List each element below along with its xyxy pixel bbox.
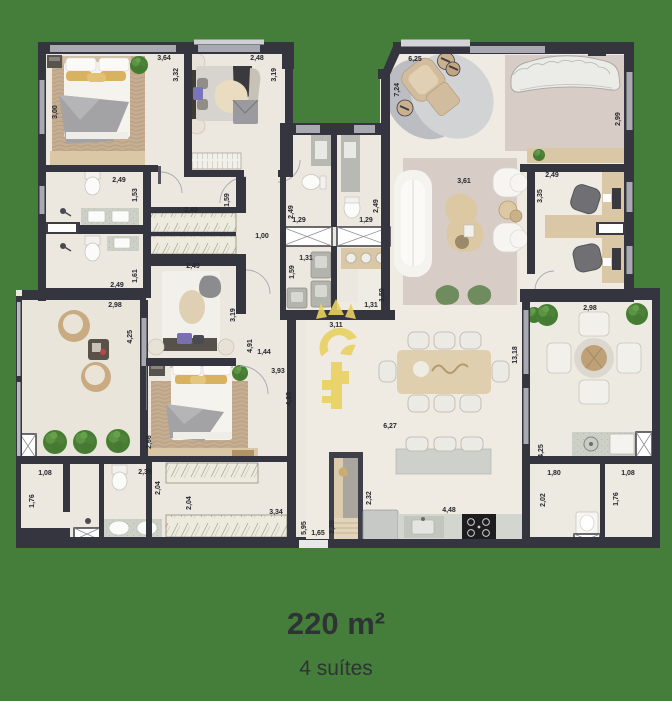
svg-text:4,83: 4,83 [286,392,293,406]
svg-text:2,39: 2,39 [138,469,152,476]
svg-text:1,08: 1,08 [38,470,52,477]
svg-text:2,98: 2,98 [108,302,122,309]
svg-text:4,48: 4,48 [442,507,456,514]
svg-text:220 m²: 220 m² [287,606,385,641]
svg-text:6,25: 6,25 [408,56,422,63]
svg-text:3,34: 3,34 [269,509,283,516]
svg-text:1,31: 1,31 [364,302,378,309]
svg-text:2,49: 2,49 [186,263,200,270]
svg-text:3,19: 3,19 [230,308,237,322]
svg-text:3,93: 3,93 [271,368,285,375]
svg-text:2,49: 2,49 [373,199,380,213]
svg-text:1,29: 1,29 [359,217,373,224]
svg-text:2,49: 2,49 [545,172,559,179]
svg-text:1,53: 1,53 [132,188,139,202]
svg-text:2,49: 2,49 [184,207,198,214]
svg-text:2,49: 2,49 [110,282,124,289]
svg-text:2,66: 2,66 [146,435,153,449]
svg-text:3,00: 3,00 [52,105,59,119]
svg-text:1,00: 1,00 [255,233,269,240]
svg-text:1,44: 1,44 [257,349,271,356]
svg-text:1,31: 1,31 [299,255,313,262]
svg-text:4,25: 4,25 [127,330,134,344]
svg-text:7,24: 7,24 [394,83,401,97]
svg-text:3,11: 3,11 [329,322,342,329]
svg-text:3,35: 3,35 [537,189,544,203]
svg-text:2,49: 2,49 [112,177,126,184]
svg-text:1,80: 1,80 [547,470,561,477]
svg-text:2,48: 2,48 [250,55,264,62]
svg-text:1,08: 1,08 [621,470,635,477]
svg-text:1,59: 1,59 [224,193,231,207]
svg-text:5,95: 5,95 [301,521,308,535]
svg-text:3,32: 3,32 [173,68,180,82]
svg-text:1,59: 1,59 [289,265,296,279]
svg-text:2,32: 2,32 [366,491,373,505]
svg-text:1,65: 1,65 [311,530,325,537]
svg-text:1,76: 1,76 [29,494,36,508]
svg-text:2,04: 2,04 [186,496,193,510]
svg-text:4,25: 4,25 [538,444,545,458]
svg-text:2,04: 2,04 [155,481,162,495]
svg-text:2,02: 2,02 [540,493,547,507]
svg-text:1,59: 1,59 [379,288,386,302]
svg-text:3,19: 3,19 [271,68,278,82]
svg-text:4 suítes: 4 suítes [299,657,373,680]
svg-text:3,61: 3,61 [457,178,471,185]
svg-text:2,99: 2,99 [615,112,622,126]
svg-text:3,64: 3,64 [157,55,171,62]
svg-text:13,18: 13,18 [512,346,519,364]
svg-text:2,98: 2,98 [583,305,597,312]
svg-text:6,27: 6,27 [383,423,397,430]
svg-text:1,76: 1,76 [613,492,620,506]
svg-text:4,91: 4,91 [247,339,254,353]
svg-text:2,20: 2,20 [329,520,336,534]
svg-text:1,61: 1,61 [132,269,139,283]
svg-text:1,29: 1,29 [292,217,306,224]
